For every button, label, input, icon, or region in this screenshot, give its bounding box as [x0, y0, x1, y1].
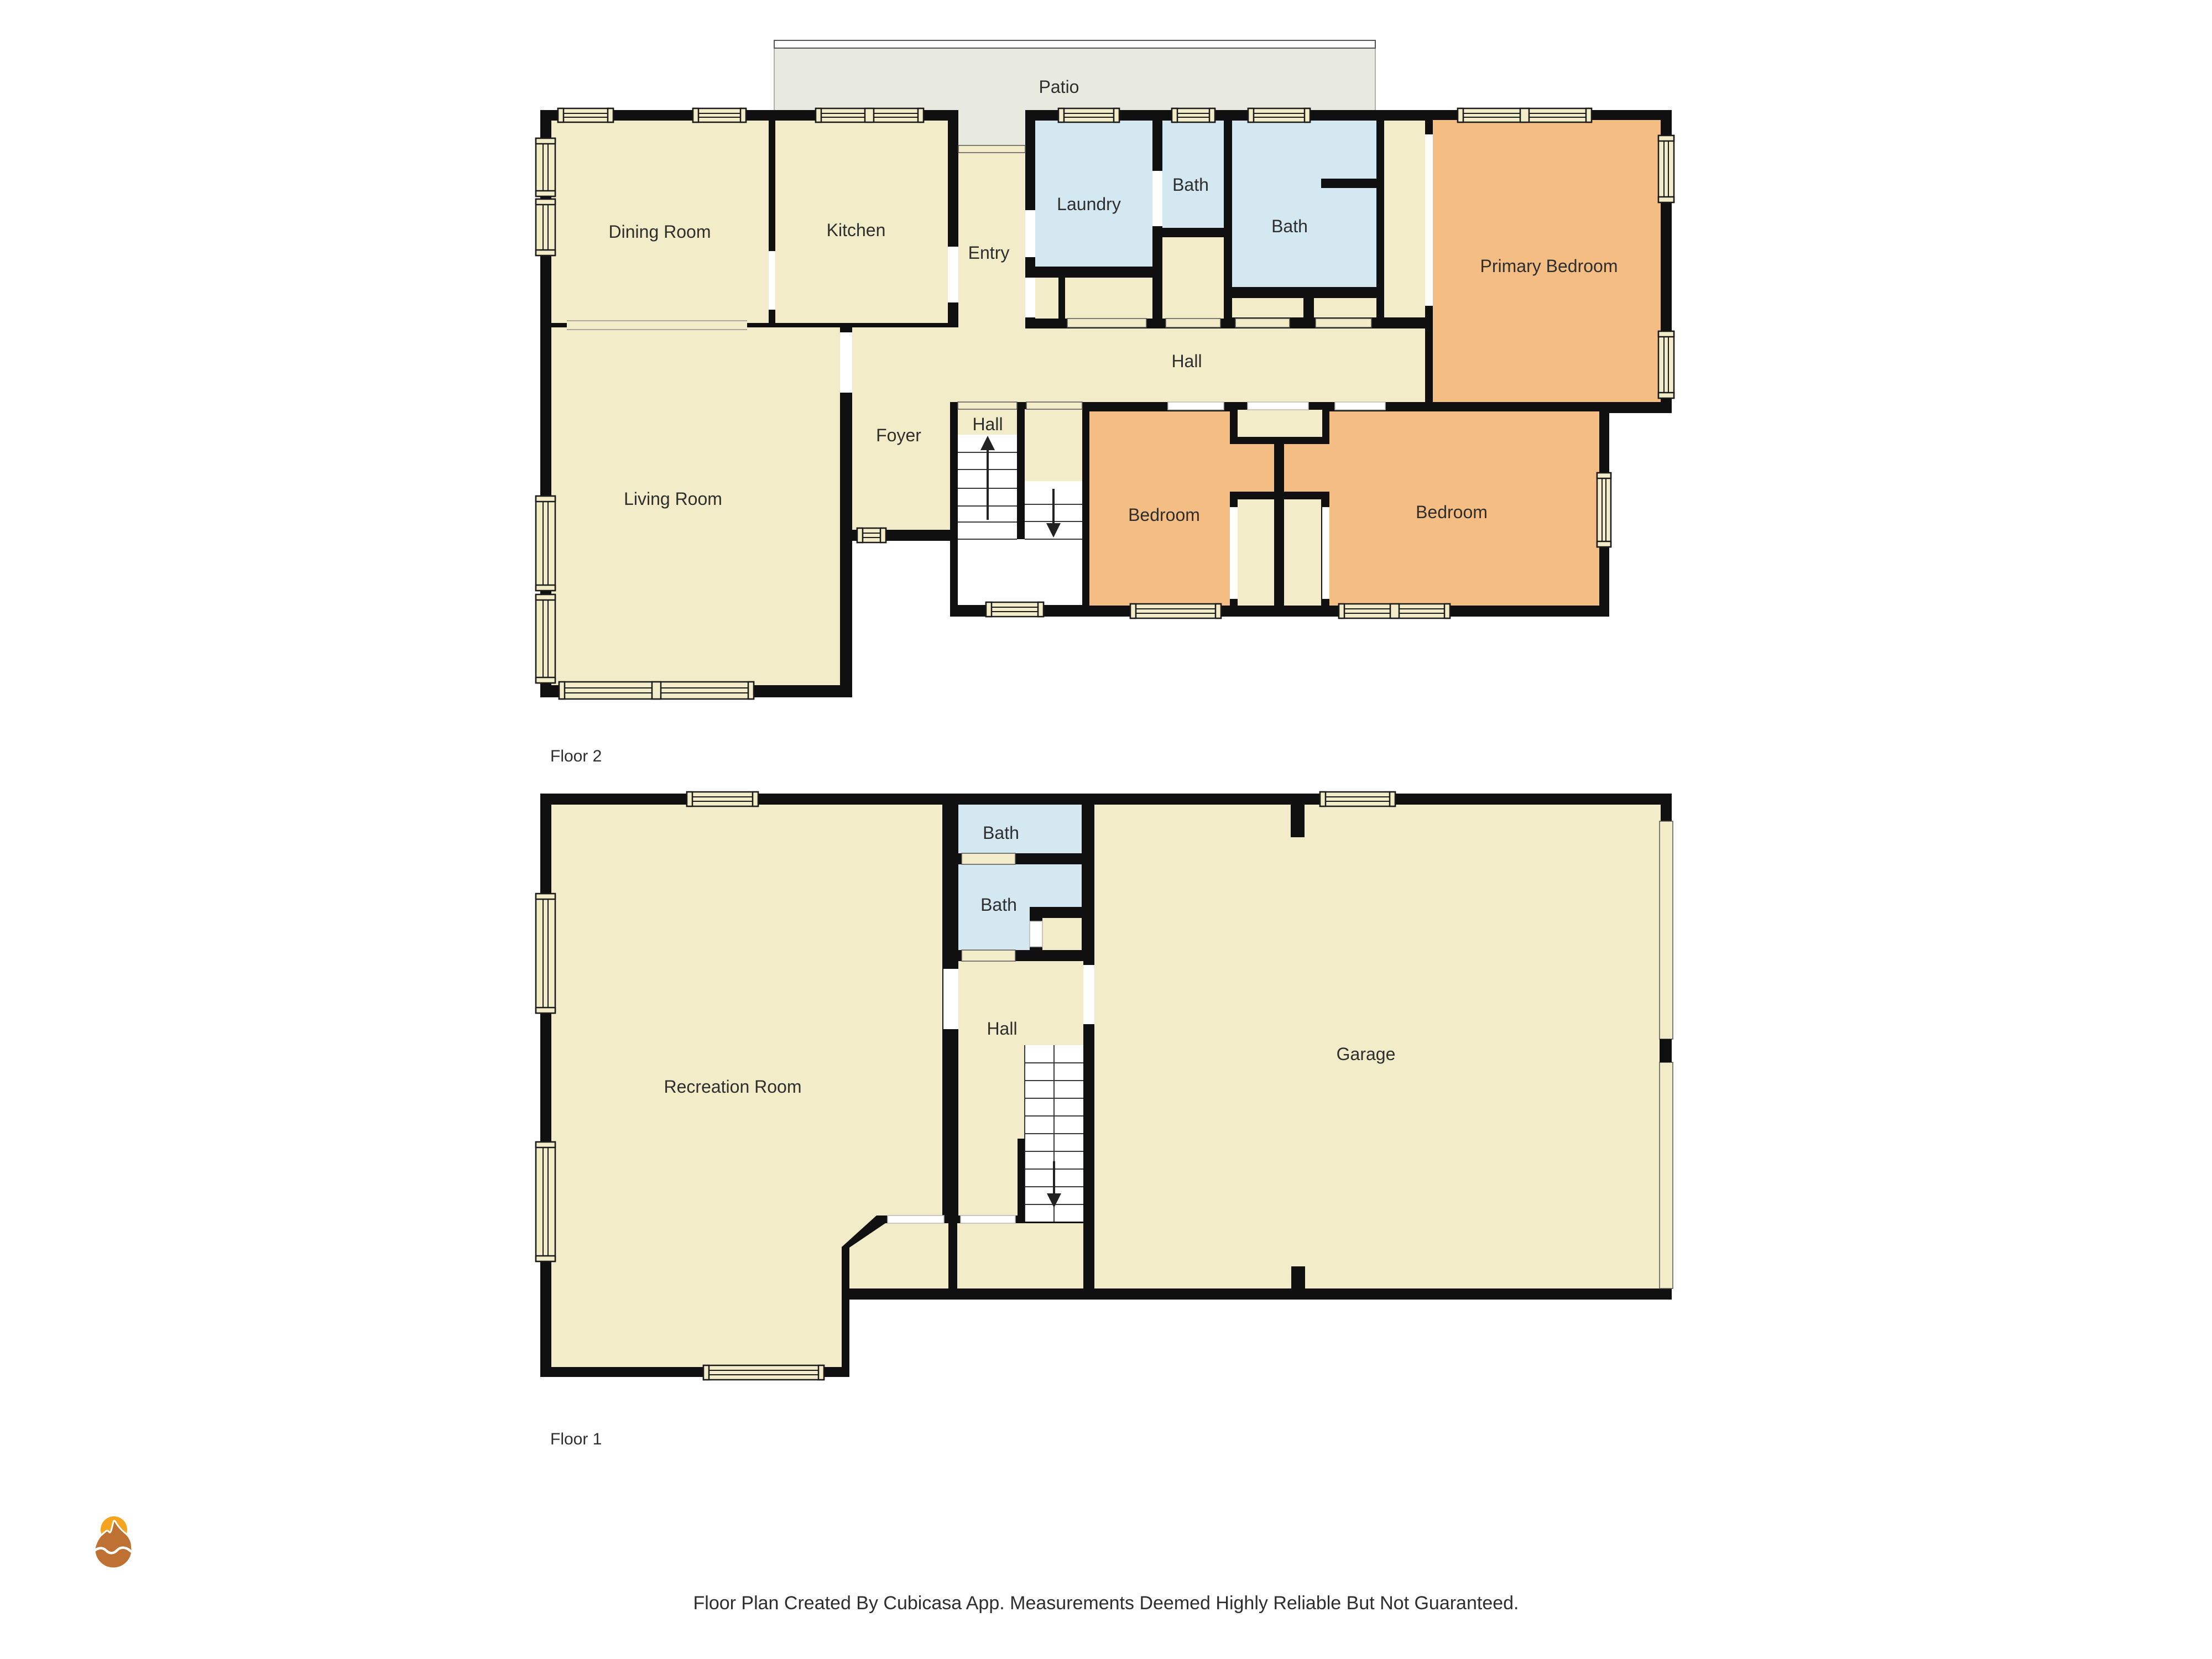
svg-text:Primary Bedroom: Primary Bedroom: [1480, 256, 1618, 276]
svg-text:Bath: Bath: [980, 895, 1017, 915]
svg-text:Patio: Patio: [1039, 77, 1079, 97]
svg-text:Dining Room: Dining Room: [609, 222, 711, 242]
svg-text:Floor 2: Floor 2: [550, 747, 602, 765]
svg-text:Floor 1: Floor 1: [550, 1430, 602, 1448]
svg-text:Bedroom: Bedroom: [1128, 505, 1200, 525]
svg-text:Foyer: Foyer: [876, 425, 921, 445]
svg-text:Living Room: Living Room: [624, 489, 722, 509]
svg-text:Bedroom: Bedroom: [1416, 502, 1488, 522]
svg-text:Bath: Bath: [1271, 216, 1308, 236]
svg-text:Hall: Hall: [972, 414, 1003, 434]
svg-text:Garage: Garage: [1337, 1044, 1396, 1064]
svg-text:Laundry: Laundry: [1057, 194, 1121, 214]
svg-text:Bath: Bath: [983, 823, 1019, 843]
svg-text:Recreation Room: Recreation Room: [664, 1077, 802, 1097]
svg-text:Floor Plan Created By Cubicasa: Floor Plan Created By Cubicasa App. Meas…: [693, 1593, 1519, 1614]
svg-text:Entry: Entry: [968, 243, 1010, 263]
svg-text:Hall: Hall: [987, 1019, 1017, 1039]
svg-text:Kitchen: Kitchen: [827, 220, 886, 240]
svg-text:Bath: Bath: [1172, 175, 1209, 195]
svg-text:Hall: Hall: [1171, 351, 1202, 371]
